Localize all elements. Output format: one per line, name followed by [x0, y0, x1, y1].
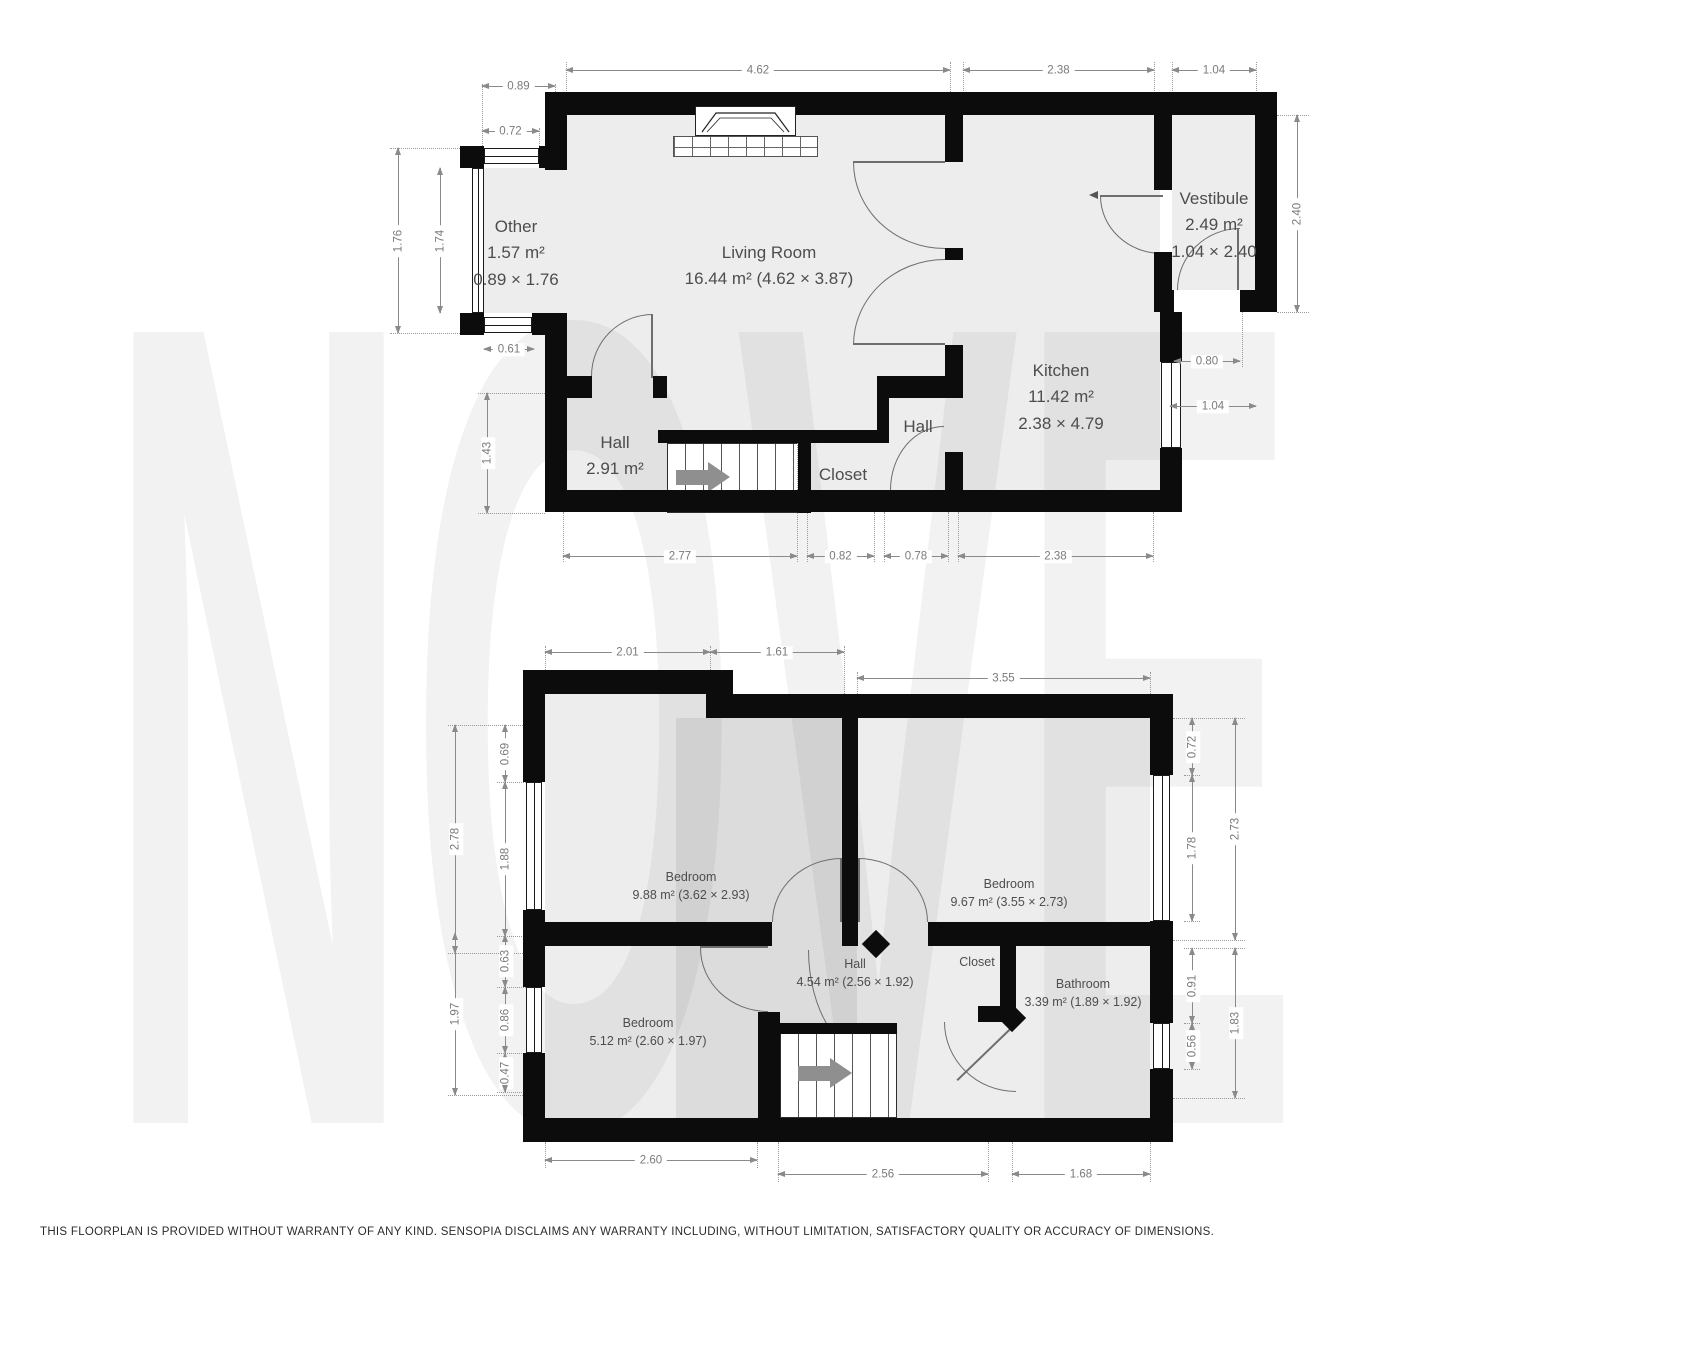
- room-name: Other: [473, 214, 559, 240]
- door-leaf: [858, 858, 860, 922]
- window: [1153, 1023, 1170, 1069]
- dimension: 2.38: [958, 556, 1153, 557]
- dimension: 1.04: [1170, 406, 1256, 407]
- dim-value: 1.43: [481, 437, 495, 469]
- dimension: 0.78: [884, 556, 948, 557]
- room-area: 9.67 m² (3.55 × 2.73): [950, 893, 1067, 911]
- window: [484, 317, 532, 333]
- room-name: Bedroom: [589, 1014, 706, 1032]
- room-area: 2.91 m²: [586, 456, 644, 482]
- door-swing-arrow-icon: [1089, 191, 1098, 199]
- fireplace-hearth: [673, 136, 818, 157]
- room-name: Bedroom: [950, 875, 1067, 893]
- wall: [945, 115, 963, 162]
- wall: [1150, 718, 1173, 775]
- dim-value: 0.56: [1186, 1030, 1200, 1062]
- room-area: 5.12 m² (2.60 × 1.97): [589, 1032, 706, 1050]
- room-name: Closet: [819, 462, 867, 488]
- dimension: 0.86: [505, 987, 506, 1053]
- dimension: 2.78: [455, 725, 456, 953]
- room-label-bedroom-right: Bedroom 9.67 m² (3.55 × 2.73): [950, 875, 1067, 911]
- dimension: 0.80: [1174, 361, 1240, 362]
- wall: [523, 1118, 1173, 1142]
- dimension: 3.55: [857, 678, 1150, 679]
- window: [526, 782, 542, 910]
- wall: [1255, 115, 1277, 312]
- dimension: 4.62: [566, 70, 950, 71]
- dimension: 2.60: [545, 1160, 757, 1161]
- ext-line: [448, 1095, 523, 1096]
- dim-value: 1.88: [499, 843, 513, 875]
- room-label-bathroom: Bathroom 3.39 m² (1.89 × 1.92): [1024, 975, 1141, 1011]
- room-name: Bedroom: [632, 868, 749, 886]
- wall: [653, 376, 667, 398]
- window: [526, 987, 542, 1053]
- door-leaf: [853, 161, 945, 163]
- dimension: 1.68: [1012, 1174, 1150, 1175]
- dimension: 0.56: [1192, 1023, 1193, 1069]
- dimension: 2.56: [778, 1174, 988, 1175]
- room-name: Hall: [903, 414, 932, 440]
- dim-value: 0.86: [499, 1004, 513, 1036]
- dim-value: 2.77: [664, 550, 696, 564]
- dim-value: 1.04: [1198, 64, 1230, 78]
- room-label-vestibule: Vestibule 2.49 m² 1.04 × 2.40: [1171, 186, 1257, 265]
- wall: [1000, 946, 1016, 1010]
- dimension: 0.89: [482, 86, 555, 87]
- dimension: 1.83: [1235, 948, 1236, 1098]
- dimension: 1.74: [440, 168, 441, 313]
- dim-value: 0.72: [1186, 730, 1200, 762]
- dimension: 1.76: [398, 148, 399, 333]
- wall: [945, 452, 963, 490]
- wall: [798, 443, 811, 513]
- room-name: Living Room: [685, 240, 854, 266]
- dim-value: 1.61: [761, 646, 793, 660]
- room-name: Kitchen: [1018, 358, 1104, 384]
- wall: [1160, 312, 1182, 362]
- room-area: 11.42 m²: [1018, 384, 1104, 410]
- wall: [545, 490, 1182, 512]
- dim-value: 1.68: [1065, 1168, 1097, 1182]
- room-label-bedroom-small: Bedroom 5.12 m² (2.60 × 1.97): [589, 1014, 706, 1050]
- dim-value: 2.73: [1229, 813, 1243, 845]
- ext-line: [545, 1142, 546, 1168]
- wall: [1150, 921, 1173, 1023]
- wall: [945, 248, 963, 260]
- dim-value: 1.74: [434, 224, 448, 256]
- dim-value: 2.38: [1042, 64, 1074, 78]
- dimension: 2.01: [545, 652, 710, 653]
- wall: [545, 92, 1277, 115]
- wall-bay: [460, 146, 484, 168]
- dim-value: 1.83: [1229, 1007, 1243, 1039]
- room-label-closet: Closet: [959, 953, 994, 971]
- room-name: Bathroom: [1024, 975, 1141, 993]
- dimension: 0.63: [505, 935, 506, 987]
- dimension: 0.69: [505, 725, 506, 782]
- room-label-bedroom-left: Bedroom 9.88 m² (3.62 × 2.93): [632, 868, 749, 904]
- room-size: 0.89 × 1.76: [473, 267, 559, 293]
- room-area: 2.49 m²: [1171, 212, 1257, 238]
- wall-bay: [460, 313, 484, 335]
- fireplace: [695, 106, 796, 136]
- wall: [771, 1023, 897, 1034]
- dim-value: 0.78: [900, 550, 932, 564]
- dim-value: 0.82: [824, 550, 856, 564]
- wall: [523, 910, 545, 987]
- wall: [877, 398, 889, 430]
- dim-value: 0.63: [499, 945, 513, 977]
- stairs-direction-arrow-icon: [798, 1058, 856, 1090]
- room-label-closet: Closet: [819, 462, 867, 488]
- dim-value: 0.72: [494, 125, 526, 139]
- dim-value: 0.69: [499, 737, 513, 769]
- wall: [1154, 252, 1172, 312]
- dimension: 0.72: [482, 131, 539, 132]
- dimension: 2.40: [1297, 115, 1298, 312]
- disclaimer-text: THIS FLOORPLAN IS PROVIDED WITHOUT WARRA…: [40, 1226, 1214, 1238]
- wall: [928, 922, 1150, 946]
- room-name: Vestibule: [1171, 186, 1257, 212]
- dimension: 2.77: [563, 556, 797, 557]
- dim-value: 2.01: [611, 646, 643, 660]
- dim-value: 1.76: [392, 224, 406, 256]
- room-area: 3.39 m² (1.89 × 1.92): [1024, 993, 1141, 1011]
- dimension: 1.88: [505, 782, 506, 936]
- ext-line: [448, 725, 523, 726]
- wall: [545, 333, 567, 512]
- dim-value: 1.78: [1186, 832, 1200, 864]
- dimension: 2.38: [963, 70, 1154, 71]
- window: [1153, 775, 1170, 921]
- door-leaf: [853, 343, 945, 345]
- dimension: 0.61: [484, 349, 534, 350]
- dim-value: 2.60: [635, 1154, 667, 1168]
- room-label-hall2: Hall: [903, 414, 932, 440]
- door-leaf: [651, 314, 653, 378]
- room-name: Hall: [586, 430, 644, 456]
- ext-line: [482, 84, 483, 148]
- wall: [523, 670, 733, 694]
- dimension: 1.61: [710, 652, 844, 653]
- wall: [545, 922, 772, 946]
- dim-value: 2.40: [1291, 197, 1305, 229]
- wall: [877, 376, 963, 398]
- wall: [567, 376, 592, 398]
- dimension: 1.78: [1192, 775, 1193, 921]
- dimension: 1.43: [487, 393, 488, 513]
- dim-value: 1.04: [1197, 400, 1229, 414]
- dim-value: 0.61: [493, 343, 525, 357]
- dim-value: 0.89: [502, 80, 534, 94]
- room-label-living-room: Living Room 16.44 m² (4.62 × 3.87): [685, 240, 854, 293]
- dim-value: 0.80: [1191, 355, 1223, 369]
- dim-value: 1.97: [449, 998, 463, 1030]
- wall: [1154, 115, 1172, 190]
- window: [484, 148, 539, 164]
- wall: [706, 694, 1173, 718]
- room-area: 9.88 m² (3.62 × 2.93): [632, 886, 749, 904]
- dim-value: 2.56: [867, 1168, 899, 1182]
- dimension: 1.97: [455, 933, 456, 1095]
- dim-value: 0.47: [499, 1056, 513, 1088]
- door-leaf: [1100, 195, 1163, 197]
- dimension: 2.73: [1235, 718, 1236, 940]
- wall: [658, 430, 889, 443]
- room-label-other: Other 1.57 m² 0.89 × 1.76: [473, 214, 559, 293]
- ext-line: [1242, 312, 1243, 367]
- wall: [1240, 290, 1277, 312]
- dimension: 0.91: [1192, 948, 1193, 1023]
- floorplan-page: NOVE: [0, 0, 1696, 1280]
- room-area: 1.57 m²: [473, 240, 559, 266]
- dim-value: 4.62: [742, 64, 774, 78]
- ext-line: [757, 1142, 758, 1168]
- wall-bay: [532, 313, 567, 335]
- wall: [842, 922, 858, 946]
- room-label-hall: Hall 2.91 m²: [586, 430, 644, 483]
- door-leaf: [700, 946, 768, 948]
- dimension: 1.04: [1172, 70, 1256, 71]
- room-name: Closet: [959, 953, 994, 971]
- room-area: 16.44 m² (4.62 × 3.87): [685, 266, 854, 292]
- room-name: Hall: [796, 955, 913, 973]
- fireplace-icon: [696, 107, 795, 135]
- dimension: 0.82: [807, 556, 874, 557]
- room-label-kitchen: Kitchen 11.42 m² 2.38 × 4.79: [1018, 358, 1104, 437]
- dim-value: 3.55: [987, 672, 1019, 686]
- room-size: 1.04 × 2.40: [1171, 239, 1257, 265]
- dim-value: 2.38: [1039, 550, 1071, 564]
- dim-value: 2.78: [449, 823, 463, 855]
- dim-value: 0.91: [1186, 969, 1200, 1001]
- dimension: 0.47: [505, 1053, 506, 1092]
- wall: [523, 670, 545, 782]
- room-area: 4.54 m² (2.56 × 1.92): [796, 973, 913, 991]
- wall: [842, 718, 858, 922]
- wall-bay: [539, 146, 567, 168]
- room-size: 2.38 × 4.79: [1018, 411, 1104, 437]
- dimension: 0.72: [1192, 718, 1193, 775]
- room-label-hall: Hall 4.54 m² (2.56 × 1.92): [796, 955, 913, 991]
